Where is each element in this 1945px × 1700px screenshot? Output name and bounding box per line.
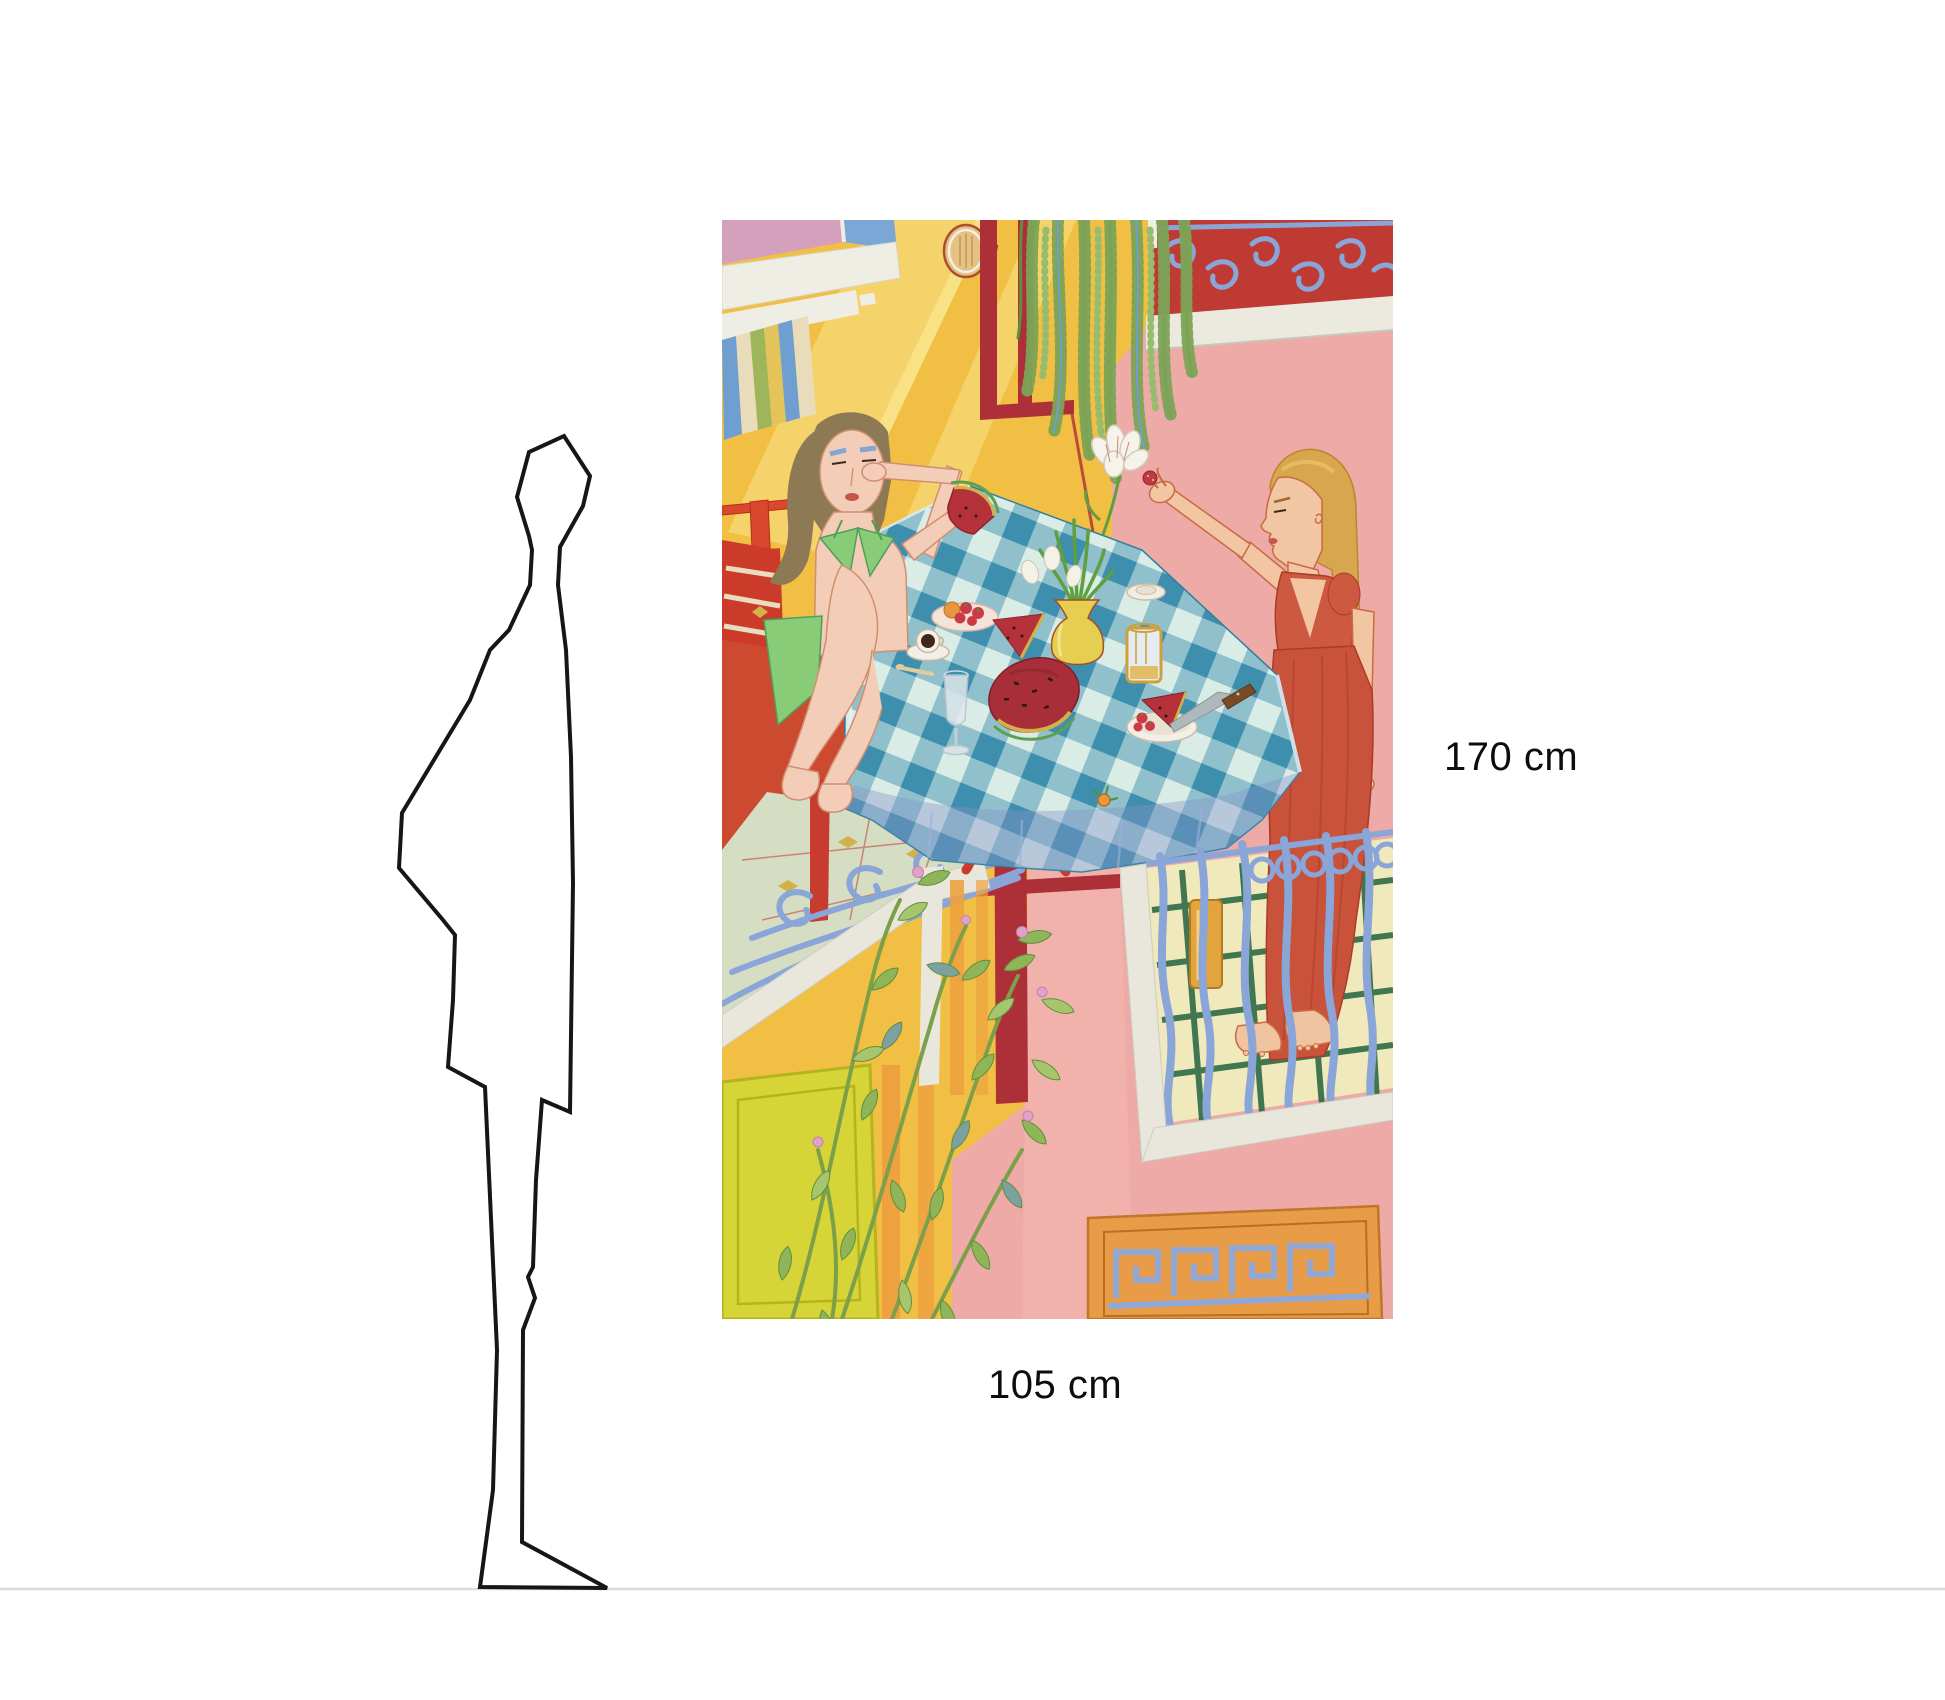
artwork-height-label: 170 cm xyxy=(1444,737,1578,777)
water-glass xyxy=(1127,624,1161,682)
white-saucer xyxy=(1127,584,1165,600)
human-silhouette-icon xyxy=(399,436,607,1588)
artwork-width-label: 105 cm xyxy=(988,1365,1122,1405)
greek-key-panel xyxy=(1088,1206,1382,1319)
fruit-plate xyxy=(932,602,998,631)
artwork-image xyxy=(722,220,1393,1319)
size-comparison-view: 170 cm 105 cm xyxy=(0,0,1945,1700)
